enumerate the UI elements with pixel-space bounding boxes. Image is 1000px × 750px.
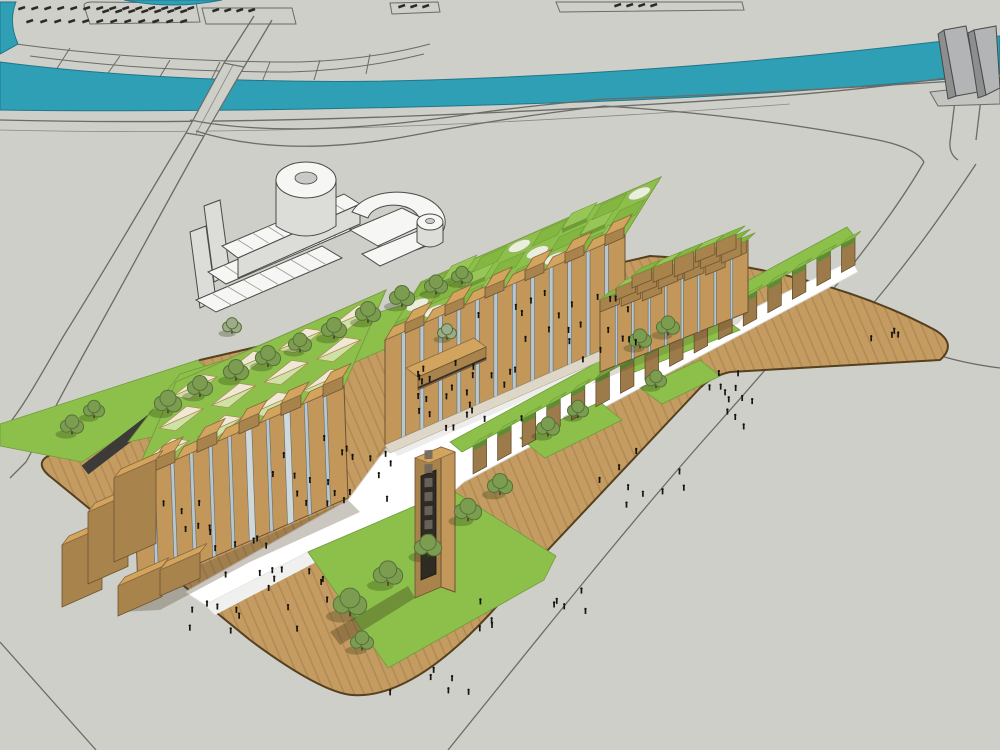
- glass-slot: [512, 283, 516, 390]
- tree-canopy: [88, 400, 100, 412]
- person: [293, 472, 295, 478]
- person: [265, 543, 267, 549]
- person-head: [293, 472, 295, 474]
- glass-slot: [494, 291, 498, 398]
- tree-canopy: [395, 286, 410, 301]
- tree-canopy: [193, 376, 208, 391]
- person: [571, 301, 573, 307]
- person-head: [256, 535, 258, 537]
- person-head: [503, 382, 505, 384]
- person-head: [452, 424, 454, 426]
- person: [234, 541, 236, 547]
- person: [326, 596, 328, 602]
- person-head: [567, 327, 569, 329]
- person: [369, 455, 371, 461]
- sign-glyph: [425, 492, 433, 502]
- person: [558, 312, 560, 318]
- person-head: [708, 384, 710, 386]
- person: [327, 479, 329, 485]
- person: [897, 331, 899, 337]
- tree-canopy: [293, 333, 307, 347]
- person-head: [445, 425, 447, 427]
- person-head: [287, 604, 289, 606]
- person-head: [454, 360, 456, 362]
- person-head: [734, 385, 736, 387]
- person-head: [635, 448, 637, 450]
- glass-slot: [531, 275, 535, 382]
- tree-canopy: [493, 474, 508, 489]
- person-head: [235, 607, 237, 609]
- person: [734, 414, 736, 420]
- person-head: [520, 415, 522, 417]
- person-head: [607, 327, 609, 329]
- person-head: [296, 490, 298, 492]
- person: [509, 369, 511, 375]
- person-head: [281, 566, 283, 568]
- person: [683, 485, 685, 491]
- person: [622, 335, 624, 341]
- person-head: [596, 294, 598, 296]
- person: [283, 452, 285, 458]
- person-head: [425, 396, 427, 398]
- tree-canopy: [226, 318, 237, 329]
- person: [256, 535, 258, 541]
- person-head: [627, 306, 629, 308]
- person-head: [490, 372, 492, 374]
- tree-canopy: [541, 417, 555, 431]
- person: [524, 336, 526, 342]
- person: [718, 370, 720, 376]
- person-head: [445, 393, 447, 395]
- person-head: [530, 297, 532, 299]
- person: [216, 603, 218, 609]
- person-head: [683, 485, 685, 487]
- person: [189, 624, 191, 630]
- person-head: [584, 608, 586, 610]
- person: [556, 598, 558, 604]
- person: [206, 600, 208, 606]
- rendering-canvas: [0, 0, 1000, 750]
- person: [469, 402, 471, 408]
- person: [598, 477, 600, 483]
- person: [309, 477, 311, 483]
- person: [635, 339, 637, 345]
- person: [198, 500, 200, 506]
- person: [628, 336, 630, 342]
- person: [720, 383, 722, 389]
- person: [490, 372, 492, 378]
- person-head: [429, 674, 431, 676]
- tree-canopy: [456, 266, 468, 278]
- person-head: [734, 414, 736, 416]
- person-head: [728, 396, 730, 398]
- site-rendering: [0, 0, 1000, 750]
- person-head: [389, 689, 391, 691]
- person: [162, 500, 164, 506]
- person: [479, 598, 481, 604]
- person-head: [418, 408, 420, 410]
- person: [544, 290, 546, 296]
- tree-canopy: [661, 316, 675, 330]
- person: [751, 398, 753, 404]
- person-head: [305, 500, 307, 502]
- person-head: [553, 601, 555, 603]
- person: [452, 424, 454, 430]
- person-head: [661, 488, 663, 490]
- sign-glyph: [425, 450, 433, 460]
- tree-canopy: [650, 370, 662, 382]
- person-head: [214, 545, 216, 547]
- person: [891, 332, 893, 338]
- person: [530, 297, 532, 303]
- person-head: [563, 603, 565, 605]
- person: [614, 295, 616, 301]
- person: [418, 408, 420, 414]
- tree-canopy: [379, 561, 396, 578]
- person-head: [724, 389, 726, 391]
- person: [235, 607, 237, 613]
- person: [579, 321, 581, 327]
- person-head: [432, 667, 434, 669]
- person-head: [598, 477, 600, 479]
- person-head: [741, 395, 743, 397]
- person-head: [472, 364, 474, 366]
- person: [224, 571, 226, 577]
- person: [384, 451, 386, 457]
- person-head: [642, 491, 644, 493]
- person-head: [421, 378, 423, 380]
- person: [467, 689, 469, 695]
- person: [724, 389, 726, 395]
- person-head: [469, 402, 471, 404]
- person-head: [216, 603, 218, 605]
- person: [584, 608, 586, 614]
- person-head: [197, 523, 199, 525]
- person: [734, 385, 736, 391]
- person: [661, 488, 663, 494]
- person: [737, 370, 739, 376]
- person: [417, 371, 419, 377]
- person: [296, 625, 298, 631]
- glass-slot: [586, 250, 590, 357]
- person-head: [628, 336, 630, 338]
- person: [378, 472, 380, 478]
- person-head: [323, 435, 325, 437]
- person-head: [625, 501, 627, 503]
- tree-canopy: [429, 275, 443, 289]
- person: [451, 384, 453, 390]
- small-cylinder-building: [417, 214, 443, 247]
- person: [386, 496, 388, 502]
- person: [323, 435, 325, 441]
- person-head: [180, 508, 182, 510]
- person: [741, 395, 743, 401]
- person: [184, 526, 186, 532]
- person-head: [184, 526, 186, 528]
- person-head: [579, 321, 581, 323]
- person-head: [568, 338, 570, 340]
- person: [471, 407, 473, 413]
- person-head: [891, 332, 893, 334]
- person: [296, 490, 298, 496]
- tree-canopy: [160, 390, 176, 406]
- person-head: [627, 484, 629, 486]
- person-head: [720, 383, 722, 385]
- person-head: [451, 675, 453, 677]
- person-head: [417, 393, 419, 395]
- person-head: [514, 366, 516, 368]
- person: [466, 389, 468, 395]
- person-head: [556, 598, 558, 600]
- person-head: [259, 570, 261, 572]
- sign-glyph: [425, 464, 433, 474]
- person: [728, 396, 730, 402]
- person: [514, 366, 516, 372]
- person: [425, 396, 427, 402]
- person: [389, 460, 391, 466]
- person-head: [737, 370, 739, 372]
- person-head: [477, 312, 479, 314]
- person: [520, 415, 522, 421]
- person: [568, 338, 570, 344]
- person-head: [509, 369, 511, 371]
- person: [271, 567, 273, 573]
- person: [580, 587, 582, 593]
- person: [454, 360, 456, 366]
- tree-canopy: [460, 498, 476, 514]
- person-head: [271, 567, 273, 569]
- sign-glyph: [425, 478, 433, 488]
- person-head: [467, 689, 469, 691]
- person-head: [351, 454, 353, 456]
- person-head: [369, 455, 371, 457]
- person: [563, 603, 565, 609]
- person-head: [206, 600, 208, 602]
- person-head: [417, 371, 419, 373]
- person: [252, 537, 254, 543]
- person: [445, 393, 447, 399]
- person-head: [422, 366, 424, 368]
- person: [490, 617, 492, 623]
- person-head: [322, 576, 324, 578]
- person-head: [743, 423, 745, 425]
- person: [191, 606, 193, 612]
- tree-canopy: [572, 400, 584, 412]
- person: [273, 576, 275, 582]
- person: [308, 568, 310, 574]
- person-head: [162, 500, 164, 502]
- tree-canopy: [340, 588, 360, 608]
- person-head: [548, 326, 550, 328]
- person: [351, 454, 353, 460]
- person: [272, 471, 274, 477]
- person-head: [326, 500, 328, 502]
- person: [503, 382, 505, 388]
- person: [345, 445, 347, 451]
- sign-glyph: [425, 520, 433, 530]
- person: [743, 423, 745, 429]
- person-head: [447, 687, 449, 689]
- person-head: [490, 617, 492, 619]
- person-head: [267, 585, 269, 587]
- tree-canopy: [261, 346, 276, 361]
- person-head: [349, 489, 351, 491]
- person: [389, 689, 391, 695]
- person: [326, 500, 328, 506]
- person-head: [265, 543, 267, 545]
- person: [870, 335, 872, 341]
- person-head: [678, 468, 680, 470]
- person: [472, 364, 474, 370]
- person: [305, 500, 307, 506]
- person-head: [466, 389, 468, 391]
- tree-canopy: [420, 534, 436, 550]
- person-head: [341, 449, 343, 451]
- person-head: [893, 328, 895, 330]
- person-head: [208, 524, 210, 526]
- person: [259, 570, 261, 576]
- person: [230, 627, 232, 633]
- person-head: [189, 624, 191, 626]
- person-head: [386, 496, 388, 498]
- person-head: [296, 625, 298, 627]
- person: [428, 411, 430, 417]
- person: [553, 601, 555, 607]
- person: [451, 675, 453, 681]
- glass-slot: [402, 331, 406, 438]
- person-head: [273, 576, 275, 578]
- person-head: [571, 301, 573, 303]
- person: [432, 667, 434, 673]
- person-head: [378, 472, 380, 474]
- person-head: [479, 598, 481, 600]
- person: [521, 310, 523, 316]
- person: [635, 448, 637, 454]
- person-head: [230, 627, 232, 629]
- person: [627, 306, 629, 312]
- person: [341, 449, 343, 455]
- person-head: [428, 376, 430, 378]
- person: [472, 372, 474, 378]
- person: [567, 327, 569, 333]
- person: [618, 464, 620, 470]
- person: [479, 625, 481, 631]
- person: [208, 524, 210, 530]
- person-head: [609, 296, 611, 298]
- person: [445, 425, 447, 431]
- person-head: [272, 471, 274, 473]
- person-head: [343, 497, 345, 499]
- person-head: [191, 606, 193, 608]
- person-head: [524, 336, 526, 338]
- person: [483, 416, 485, 422]
- person-head: [472, 372, 474, 374]
- cylinder-building: [276, 162, 336, 236]
- person-head: [582, 356, 584, 358]
- sign-glyph: [425, 506, 433, 516]
- person-head: [870, 335, 872, 337]
- person-head: [198, 500, 200, 502]
- person-head: [224, 571, 226, 573]
- person-head: [238, 613, 240, 615]
- person-head: [326, 596, 328, 598]
- person: [607, 327, 609, 333]
- person: [320, 579, 322, 585]
- person: [582, 356, 584, 362]
- person-head: [751, 398, 753, 400]
- person-head: [635, 339, 637, 341]
- tree-canopy: [441, 324, 452, 335]
- person: [599, 347, 601, 353]
- glass-slot: [568, 258, 572, 365]
- tree-canopy: [65, 415, 79, 429]
- person-head: [580, 587, 582, 589]
- person: [422, 366, 424, 372]
- person: [466, 411, 468, 417]
- person: [214, 545, 216, 551]
- person-head: [252, 537, 254, 539]
- person: [343, 497, 345, 503]
- tree-canopy: [327, 318, 342, 333]
- person: [893, 328, 895, 334]
- person: [180, 508, 182, 514]
- person-head: [726, 408, 728, 410]
- person-head: [614, 295, 616, 297]
- person: [287, 604, 289, 610]
- person: [708, 384, 710, 390]
- person: [333, 490, 335, 496]
- person-head: [309, 477, 311, 479]
- person: [417, 393, 419, 399]
- glass-slot: [549, 266, 553, 373]
- tree-canopy: [355, 631, 369, 645]
- person-head: [384, 451, 386, 453]
- person: [267, 585, 269, 591]
- person: [281, 566, 283, 572]
- person-head: [451, 384, 453, 386]
- person-head: [622, 335, 624, 337]
- person: [428, 376, 430, 382]
- person: [238, 613, 240, 619]
- person-head: [308, 568, 310, 570]
- person: [421, 378, 423, 384]
- person: [625, 501, 627, 507]
- person: [322, 576, 324, 582]
- person-head: [897, 331, 899, 333]
- person: [726, 408, 728, 414]
- person-head: [320, 579, 322, 581]
- person: [349, 489, 351, 495]
- person: [429, 674, 431, 680]
- person-head: [521, 310, 523, 312]
- person: [678, 468, 680, 474]
- person-head: [327, 479, 329, 481]
- person-head: [234, 541, 236, 543]
- person-head: [718, 370, 720, 372]
- person-head: [428, 411, 430, 413]
- person-head: [544, 290, 546, 292]
- person: [197, 523, 199, 529]
- person: [548, 326, 550, 332]
- person-head: [471, 407, 473, 409]
- person-head: [389, 460, 391, 462]
- person: [477, 312, 479, 318]
- person-head: [599, 347, 601, 349]
- person-head: [515, 304, 517, 306]
- person-head: [618, 464, 620, 466]
- person: [515, 304, 517, 310]
- person: [596, 294, 598, 300]
